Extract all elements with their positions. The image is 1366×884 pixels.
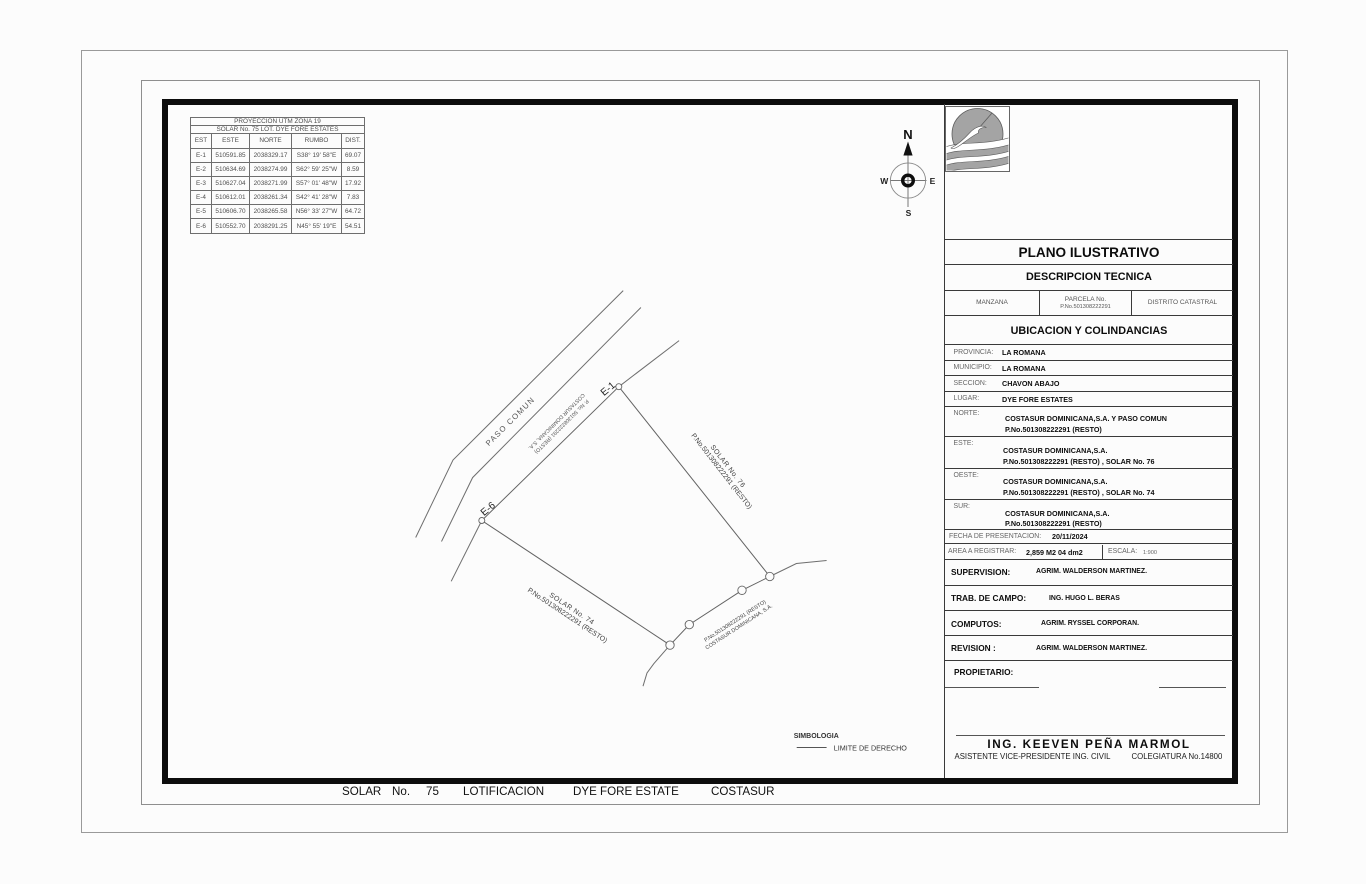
svg-text:W: W (880, 176, 889, 186)
svg-text:LIMITE DE DERECHO: LIMITE DE DERECHO (834, 744, 907, 753)
svg-text:P.No.501308222291 (RESTO): P.No.501308222291 (RESTO) (689, 432, 752, 510)
svg-text:COSTASUR DOMINICANA, S.A.: COSTASUR DOMINICANA, S.A. (705, 603, 774, 651)
svg-text:N: N (903, 127, 912, 142)
svg-text:E-6: E-6 (479, 500, 498, 519)
svg-text:P.No.501308222291 (RESTO): P.No.501308222291 (RESTO) (703, 599, 767, 644)
svg-text:S: S (906, 208, 912, 218)
svg-text:E: E (930, 176, 936, 186)
svg-text:SIMBOLOGIA: SIMBOLOGIA (794, 733, 839, 740)
svg-text:E-1: E-1 (599, 380, 618, 399)
svg-text:P. No. 501308222291 (RESTO): P. No. 501308222291 (RESTO) (533, 398, 590, 455)
